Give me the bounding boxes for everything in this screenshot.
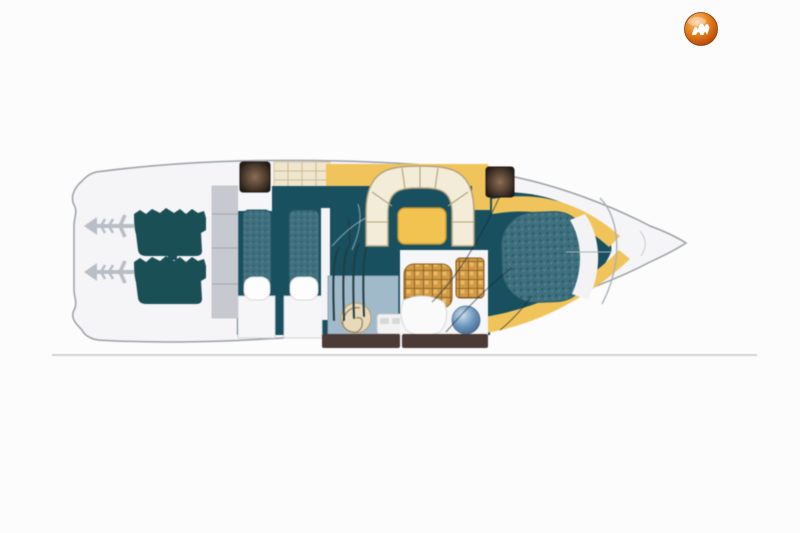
aft-deck-hatch-icon	[240, 162, 270, 192]
engine-starboard	[134, 256, 206, 304]
orange-sphere-wave-logo-icon	[683, 11, 719, 47]
page-canvas	[0, 0, 800, 533]
companionway-steps	[274, 162, 330, 190]
wicker-panel-small	[456, 258, 484, 298]
berth-pillow-starboard	[290, 277, 318, 300]
berth-mattress-port	[243, 210, 271, 286]
stove-icon	[377, 314, 403, 334]
head-compartment	[400, 250, 488, 348]
yacht-floorplan	[0, 0, 800, 533]
dinette-table	[398, 208, 446, 244]
toilet-icon	[401, 296, 447, 336]
head-counter-edge	[402, 334, 488, 348]
foredeck-hatch-icon	[486, 167, 514, 197]
engine-port	[134, 208, 206, 256]
berth-mattress-starboard	[289, 210, 319, 286]
engine-room-bulkhead-steps	[212, 186, 238, 318]
berth-pillow-port	[244, 277, 270, 300]
galley-counter-edge	[322, 334, 400, 348]
